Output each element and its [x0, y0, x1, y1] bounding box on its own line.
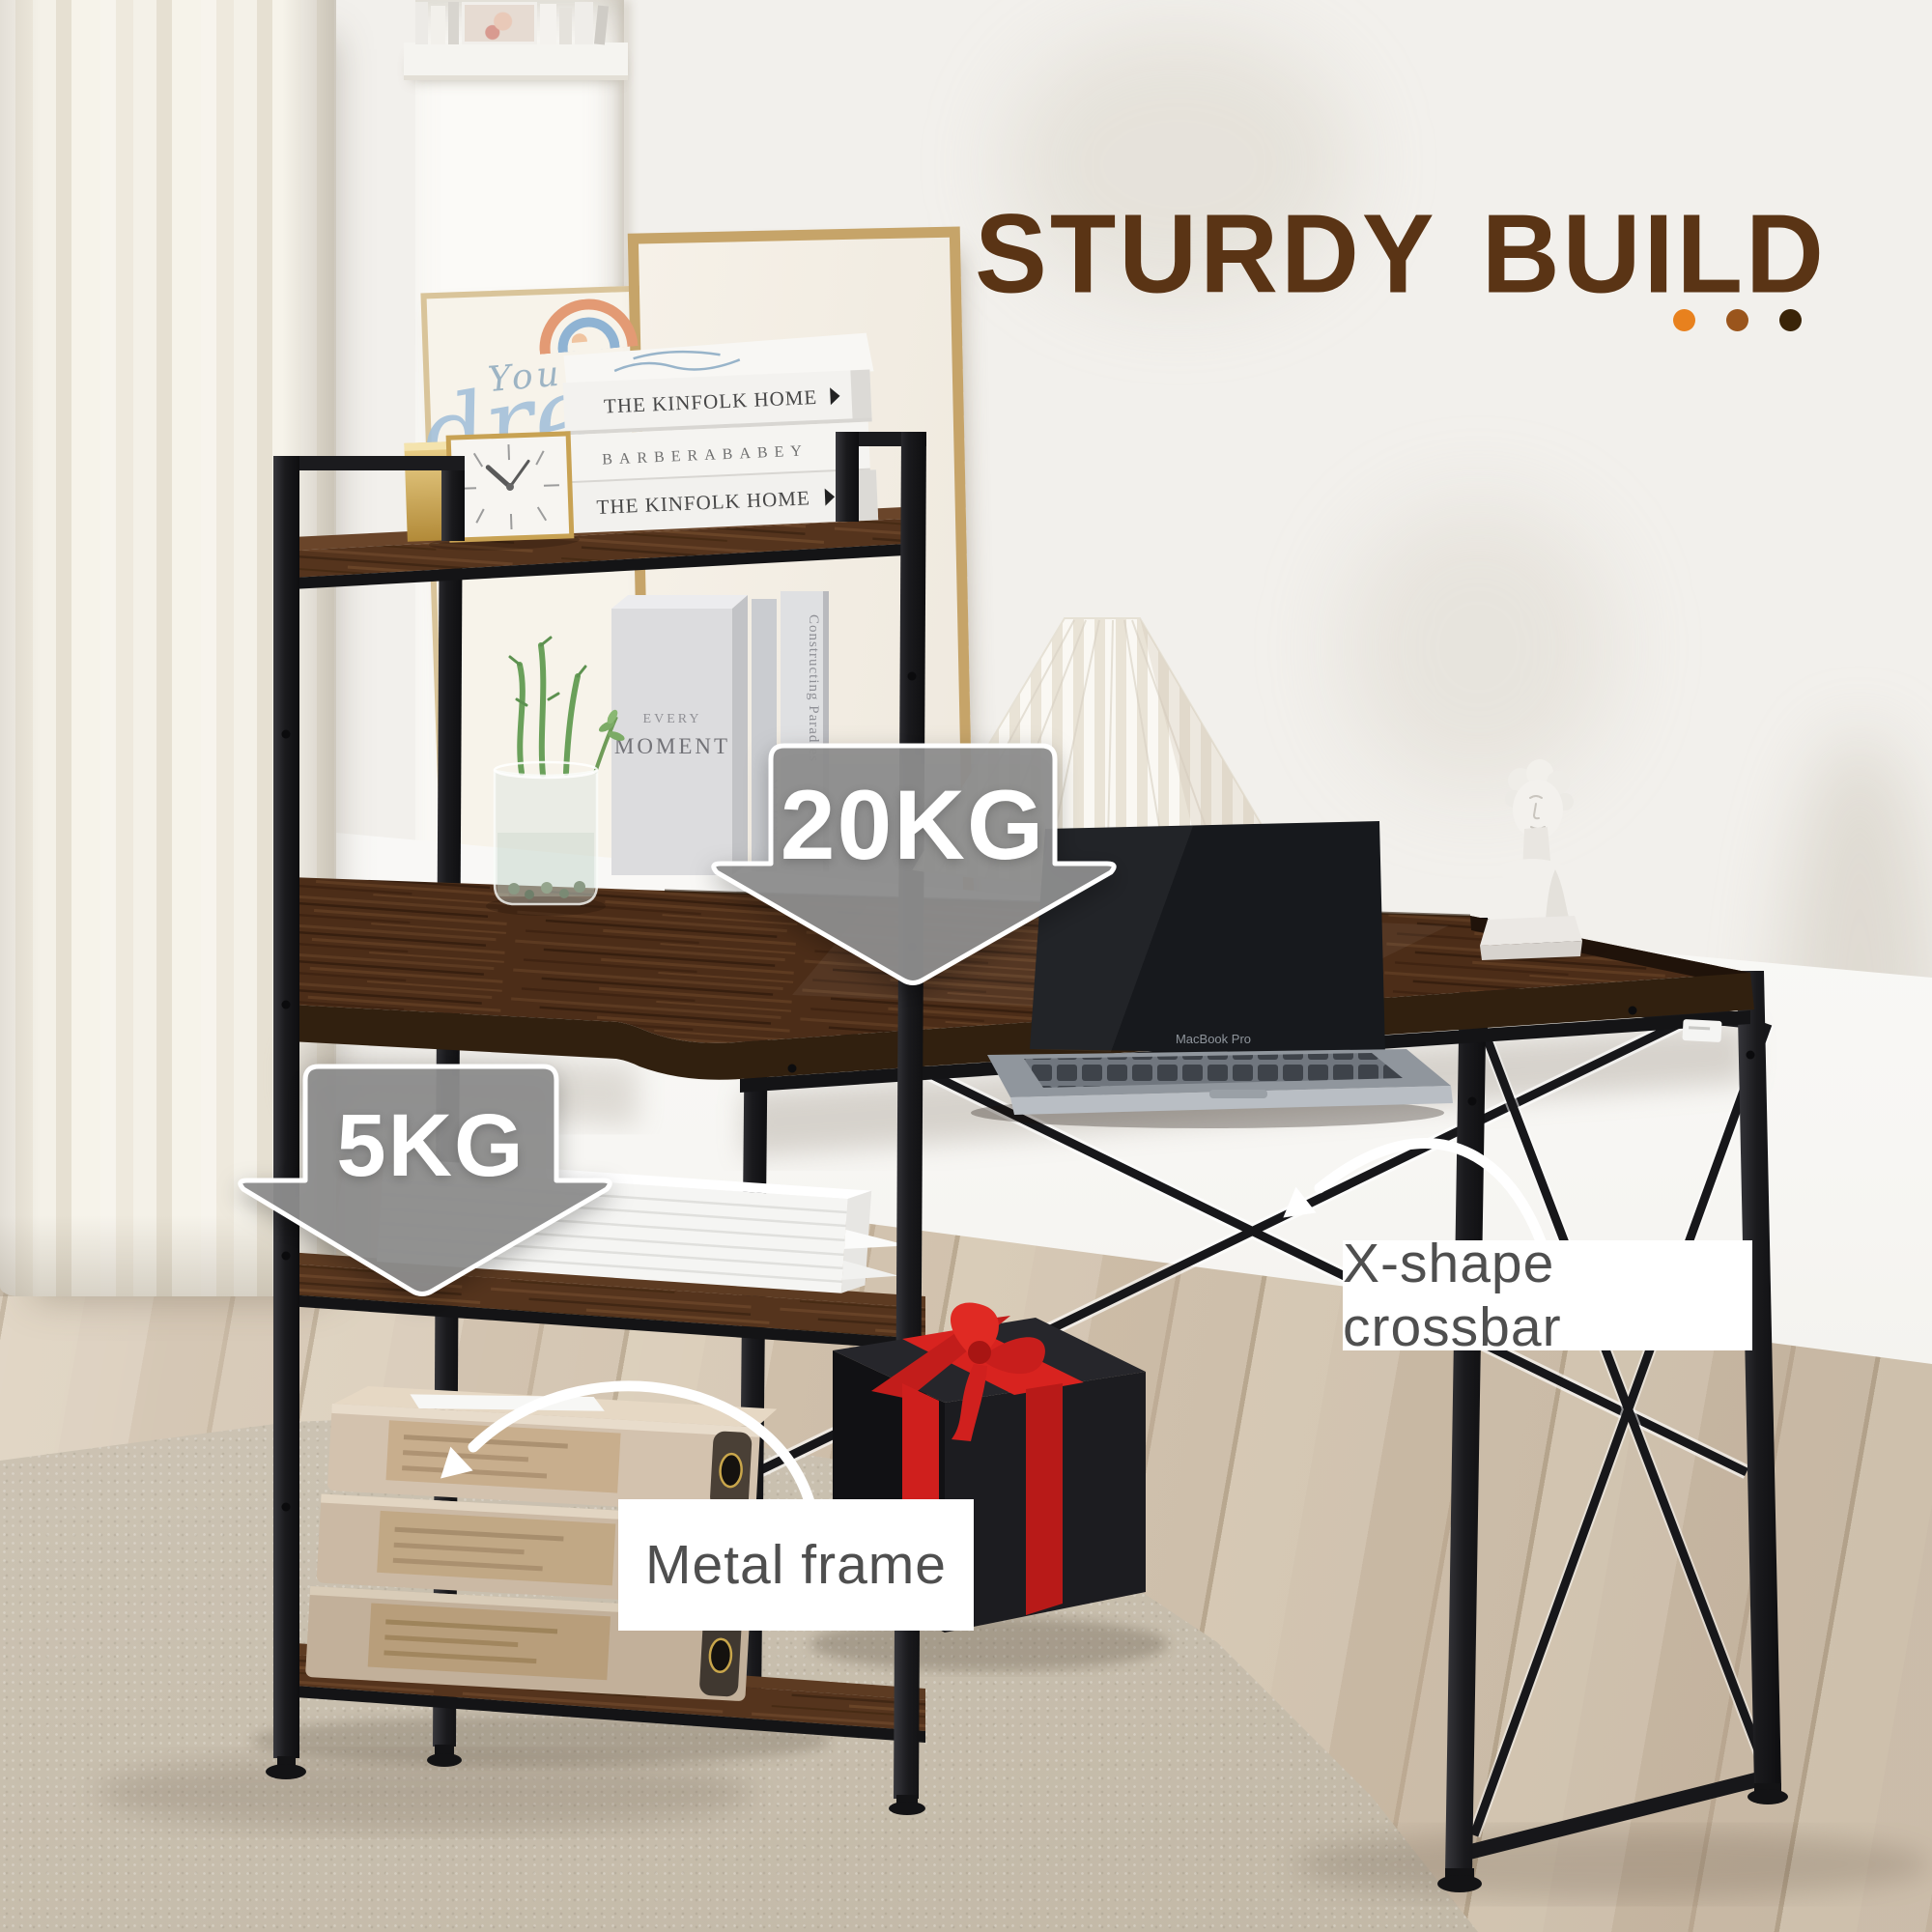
desk-sticker	[1682, 1019, 1721, 1042]
callout-label-crossbar: X-shape crossbar	[1343, 1240, 1752, 1350]
accent-dot-orange	[1673, 309, 1695, 331]
callout-label-metal-frame: Metal frame	[618, 1499, 974, 1631]
accent-dots	[1673, 309, 1802, 331]
capacity-text-shelf: 5KG	[296, 1095, 566, 1197]
accent-dot-brown	[1726, 309, 1748, 331]
bust-statue	[1480, 759, 1607, 960]
book-spine-vertical-text: Constructing Paradies	[806, 614, 821, 762]
accent-dot-dark	[1779, 309, 1802, 331]
laptop-brand-text: MacBook Pro	[1176, 1032, 1251, 1046]
top-book-stack: THE KINFOLK HOME BARBERABABEY THE KINFOL…	[538, 332, 880, 534]
capacity-text-desk: 20KG	[768, 769, 1058, 882]
desk-clock	[404, 434, 580, 554]
product-showcase-image: You got dre	[0, 0, 1932, 1932]
page-title: STURDY BUILD	[947, 195, 1855, 313]
glass-plant	[486, 638, 626, 916]
box-text-large: MOMENT	[614, 734, 730, 758]
box-text-small: EVERY	[643, 712, 702, 726]
